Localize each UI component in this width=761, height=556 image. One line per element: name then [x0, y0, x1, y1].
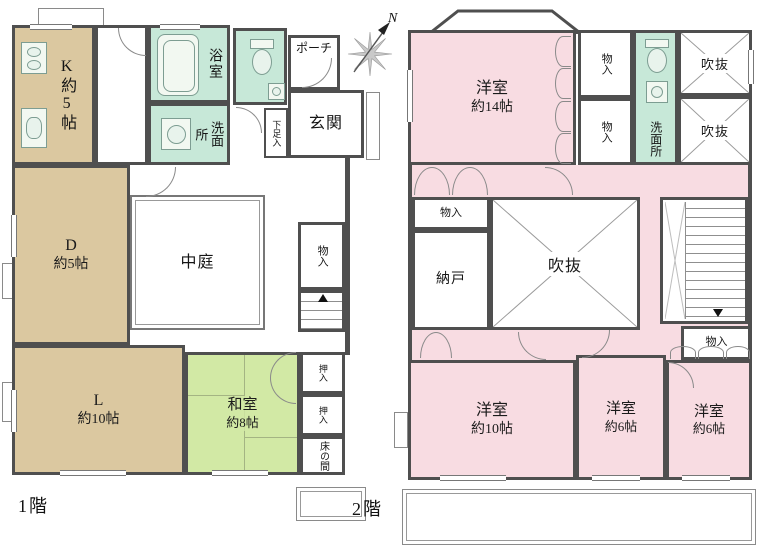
- entrance-label: 玄関: [309, 114, 343, 133]
- window: [11, 215, 17, 257]
- dining-name: D: [65, 236, 77, 256]
- door-arc: [236, 107, 262, 133]
- stairs-1f-arrow: [318, 294, 328, 302]
- kitchen-label: K約5帖: [57, 58, 76, 132]
- hand-sink-basin-icon: [272, 87, 281, 96]
- room-bedroom-14: 洋室 約14帖: [408, 30, 576, 165]
- washroom-1f-label: 洗面所: [193, 120, 224, 148]
- floor1-caption: 1階: [18, 492, 49, 518]
- closet-door-arc: [555, 36, 571, 67]
- north-star: [348, 32, 392, 76]
- storage-2f-top1-label: 物入: [599, 53, 612, 75]
- closet-door-arc: [555, 133, 571, 164]
- washer-drum-icon: [167, 125, 186, 144]
- storage-2f-top2-label: 物入: [599, 121, 612, 143]
- porch-label: ポーチ: [296, 41, 332, 55]
- bedroom-10-name: 洋室: [476, 401, 508, 421]
- door-arc: [146, 167, 176, 197]
- stove-burner-icon: [27, 60, 41, 70]
- shutter-box-bedroom10: [394, 412, 408, 448]
- bedroom-10-size: 約10帖: [471, 421, 513, 439]
- window: [592, 475, 640, 481]
- floor-plan: K約5帖 浴室 洗面所 ポーチ 玄関 下足入 D 約5帖: [0, 0, 761, 556]
- window: [440, 475, 506, 481]
- north-label: N: [387, 11, 398, 26]
- stairs-2f-arrow: [713, 309, 723, 317]
- room-washroom-2f: 洗面所: [633, 30, 678, 165]
- nando-label: 納戸: [436, 272, 466, 289]
- bathtub-inner-icon: [163, 40, 195, 92]
- toilet-tank-icon: [645, 39, 669, 48]
- basin-icon: [646, 81, 668, 103]
- closet-upper-label: 押入: [317, 364, 328, 382]
- room-washroom-1f: 洗面所: [148, 103, 230, 165]
- room-void-top1: 吹抜: [678, 30, 752, 96]
- closet-door-arc: [698, 346, 724, 359]
- stairs-2f: [660, 197, 748, 324]
- bathtub-icon: [157, 34, 199, 96]
- toilet-bowl-icon: [252, 49, 272, 75]
- shoe-box-label: 下足入: [271, 120, 282, 147]
- room-storage-1f: 物入: [298, 222, 345, 290]
- room-storage-2f-top1: 物入: [578, 30, 633, 98]
- wall-segment: [345, 155, 350, 355]
- room-storage-2f-top2: 物入: [578, 98, 633, 165]
- window: [682, 475, 730, 481]
- closet-door-arc: [670, 346, 696, 359]
- toilet-tank-icon: [250, 39, 274, 49]
- stairs-2f-steps: [686, 200, 745, 321]
- room-bedroom-6-center: 洋室 約6帖: [576, 355, 666, 480]
- window: [212, 470, 268, 476]
- window: [748, 50, 754, 84]
- window: [160, 24, 200, 30]
- bedroom-6-center-name: 洋室: [606, 400, 636, 419]
- room-shoe-box: 下足入: [264, 108, 288, 158]
- toilet-bowl-icon: [647, 48, 667, 73]
- bedroom-14-name: 洋室: [476, 79, 508, 99]
- wall-segment: [408, 163, 412, 362]
- storage-2f-center-label: 物入: [440, 207, 462, 220]
- tokonoma-label: 床の間: [317, 441, 329, 471]
- floor2-caption: 2階: [352, 495, 383, 521]
- window: [407, 70, 413, 122]
- room-nando: 納戸: [412, 230, 490, 330]
- bedroom-6-center-size: 約6帖: [605, 419, 638, 435]
- dining-size: 約5帖: [54, 256, 89, 274]
- room-toilet-1f: [233, 28, 287, 105]
- room-kitchen: K約5帖: [12, 25, 95, 165]
- washitsu-size: 約8帖: [226, 415, 259, 431]
- basin-bowl-icon: [651, 86, 663, 98]
- bedroom-6-right-size: 約6帖: [693, 421, 726, 437]
- closet-door-arc: [555, 68, 571, 99]
- room-void-top2: 吹抜: [678, 96, 752, 165]
- courtyard-label: 中庭: [180, 253, 214, 272]
- room-entrance: 玄関: [288, 90, 364, 158]
- window: [30, 24, 72, 30]
- washroom-2f-label: 洗面所: [648, 121, 662, 157]
- window: [60, 470, 126, 476]
- room-closet-upper: 押入: [300, 352, 345, 394]
- bedroom-6-right-name: 洋室: [694, 403, 724, 422]
- room-bedroom-10: 洋室 約10帖: [408, 360, 576, 480]
- room-storage-2f-center: 物入: [412, 197, 490, 230]
- room-dining: D 約5帖: [12, 165, 130, 345]
- stairs-2f-void: [665, 202, 686, 319]
- living-size: 約10帖: [78, 411, 120, 429]
- wall-segment: [748, 163, 752, 362]
- closet-door-arc: [555, 101, 571, 132]
- storage-1f-label: 物入: [315, 245, 328, 267]
- washitsu-name: 和室: [227, 396, 257, 415]
- stove-burner-icon: [27, 47, 41, 57]
- void-top1-label: 吹抜: [699, 54, 731, 73]
- tatami-line: [244, 437, 297, 438]
- bedroom-14-size: 約14帖: [471, 99, 513, 117]
- room-living: L 約10帖: [12, 345, 185, 475]
- closet-door-arc: [726, 346, 750, 359]
- stairs-1f: [298, 290, 345, 332]
- closet-lower-label: 押入: [317, 406, 328, 424]
- room-bath: 浴室: [148, 25, 230, 103]
- void-top2-label: 吹抜: [699, 121, 731, 140]
- room-tokonoma: 床の間: [300, 436, 345, 475]
- room-void-center: 吹抜: [490, 197, 640, 330]
- living-name: L: [94, 391, 104, 411]
- stairs-void-cross-lines: [665, 202, 685, 319]
- north-arrow: N: [344, 8, 404, 86]
- balcony-2f-inner-line: [406, 493, 752, 541]
- kitchen-sink-icon: [21, 108, 47, 148]
- hand-sink-icon: [268, 83, 285, 100]
- window: [11, 390, 17, 432]
- room-closet-lower: 押入: [300, 394, 345, 436]
- sink-basin-icon: [26, 117, 42, 139]
- room-courtyard: 中庭: [130, 195, 265, 330]
- washer-icon: [161, 118, 191, 150]
- bath-label: 浴室: [205, 48, 222, 80]
- balcony-2f: [402, 489, 756, 545]
- eave-entrance-side: [366, 92, 380, 160]
- stove-icon: [21, 42, 47, 74]
- void-center-label: 吹抜: [546, 252, 584, 276]
